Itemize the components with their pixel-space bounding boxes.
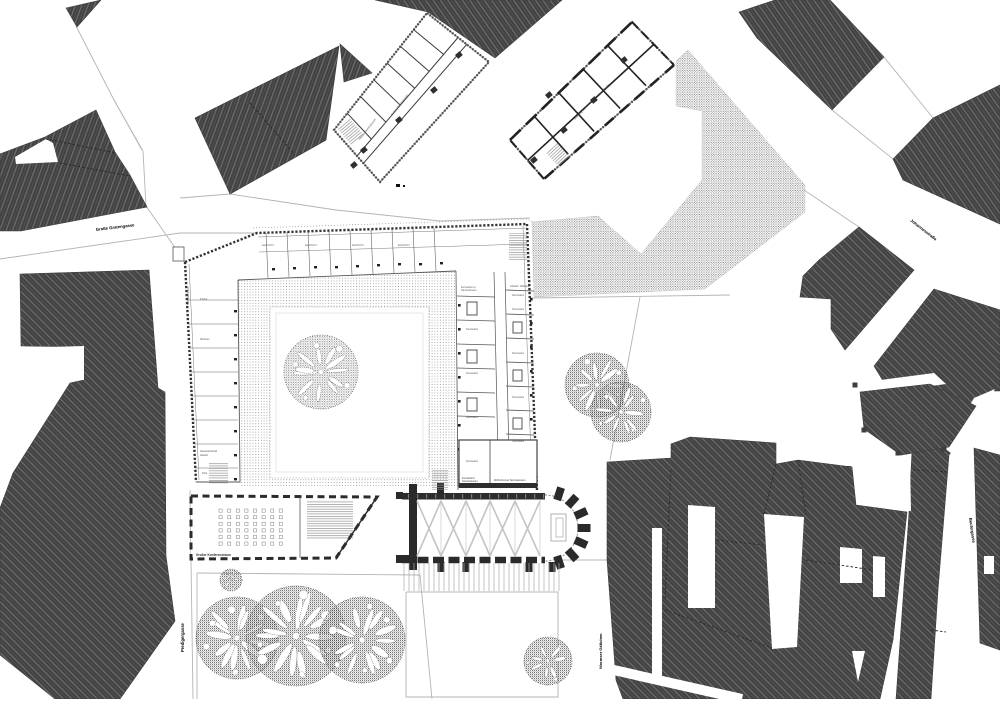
svg-text:Seminarra: Seminarra (352, 243, 365, 247)
svg-text:Großer Konferenzraum: Großer Konferenzraum (196, 553, 231, 557)
svg-text:Seminarra: Seminarra (512, 293, 525, 297)
svg-text:Seminarraum: Seminarraum (462, 479, 478, 483)
svg-text:Seminarra: Seminarra (466, 459, 479, 463)
svg-text:Seminarra: Seminarra (305, 243, 318, 247)
svg-text:Seminarra: Seminarra (466, 371, 479, 375)
svg-text:Wormser Gäßchen: Wormser Gäßchen (598, 633, 603, 669)
svg-text:Wohnzimmer Seminarraum: Wohnzimmer Seminarraum (494, 478, 526, 482)
svg-text:Seminarra: Seminarra (512, 351, 525, 355)
svg-text:Seminarra: Seminarra (466, 415, 479, 419)
svg-text:Abstell: Abstell (200, 453, 208, 457)
svg-text:Predigergasse: Predigergasse (180, 622, 185, 652)
svg-text:Hauswirtschaft: Hauswirtschaft (200, 449, 217, 453)
svg-text:Seminarra: Seminarra (262, 243, 275, 247)
svg-text:Seminarra: Seminarra (466, 327, 479, 331)
svg-text:Seminarra: Seminarra (398, 243, 411, 247)
svg-text:Seminarra: Seminarra (512, 395, 525, 399)
svg-text:Post: Post (202, 471, 207, 475)
svg-text:Abstell / Wäsche: Abstell / Wäsche (510, 284, 530, 288)
svg-text:Seminarraum: Seminarraum (461, 288, 477, 292)
svg-text:Seminarra: Seminarra (512, 439, 525, 443)
svg-text:Wohnen: Wohnen (200, 337, 210, 341)
svg-text:Küche: Küche (200, 297, 208, 301)
svg-text:Seminarra: Seminarra (512, 307, 525, 311)
svg-text:Schwesternhaus: Schwesternhaus (187, 287, 190, 305)
